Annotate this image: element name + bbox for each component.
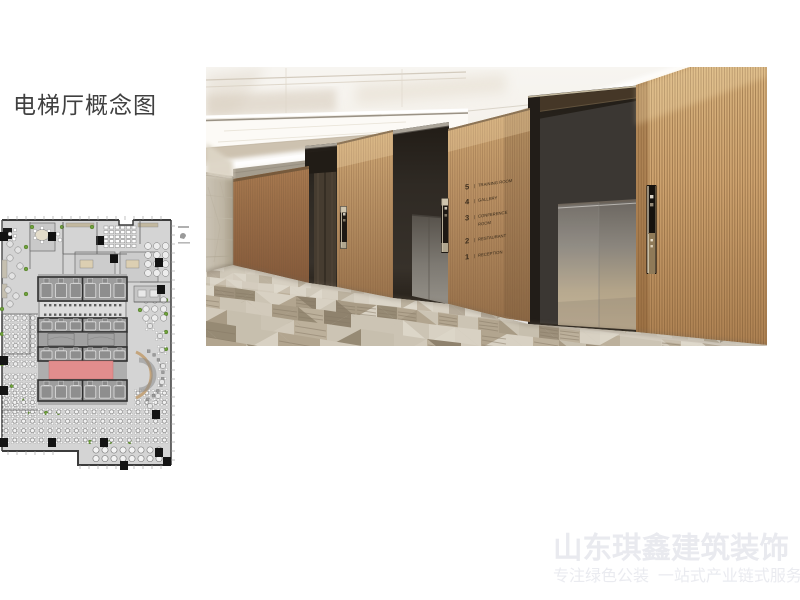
svg-text:|: | xyxy=(474,237,475,242)
svg-text:5: 5 xyxy=(465,182,469,192)
svg-text:|: | xyxy=(474,253,475,258)
svg-text:|: | xyxy=(474,198,475,203)
svg-text:|: | xyxy=(474,214,475,219)
svg-text:|: | xyxy=(474,183,475,188)
svg-text:3: 3 xyxy=(465,213,469,223)
svg-text:2: 2 xyxy=(465,236,469,246)
svg-text:1: 1 xyxy=(465,252,469,262)
